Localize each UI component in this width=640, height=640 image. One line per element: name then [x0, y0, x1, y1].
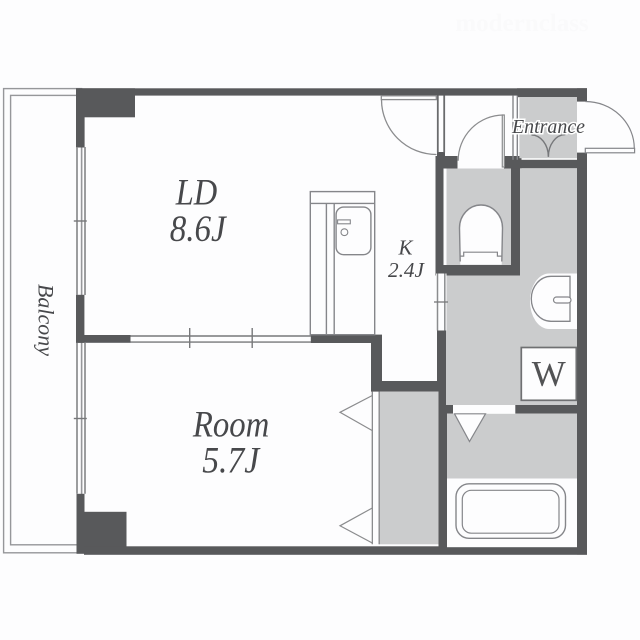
- svg-text:Room: Room: [192, 403, 269, 444]
- svg-text:K: K: [397, 235, 413, 259]
- svg-text:Balcony: Balcony: [34, 284, 59, 356]
- svg-text:Entrance: Entrance: [511, 117, 585, 138]
- svg-text:modernclass: modernclass: [455, 10, 589, 37]
- svg-text:8.6J: 8.6J: [170, 208, 228, 249]
- svg-text:2.4J: 2.4J: [388, 258, 426, 282]
- svg-text:5.7J: 5.7J: [202, 440, 261, 481]
- svg-text:LD: LD: [175, 172, 217, 213]
- svg-text:W: W: [532, 354, 566, 394]
